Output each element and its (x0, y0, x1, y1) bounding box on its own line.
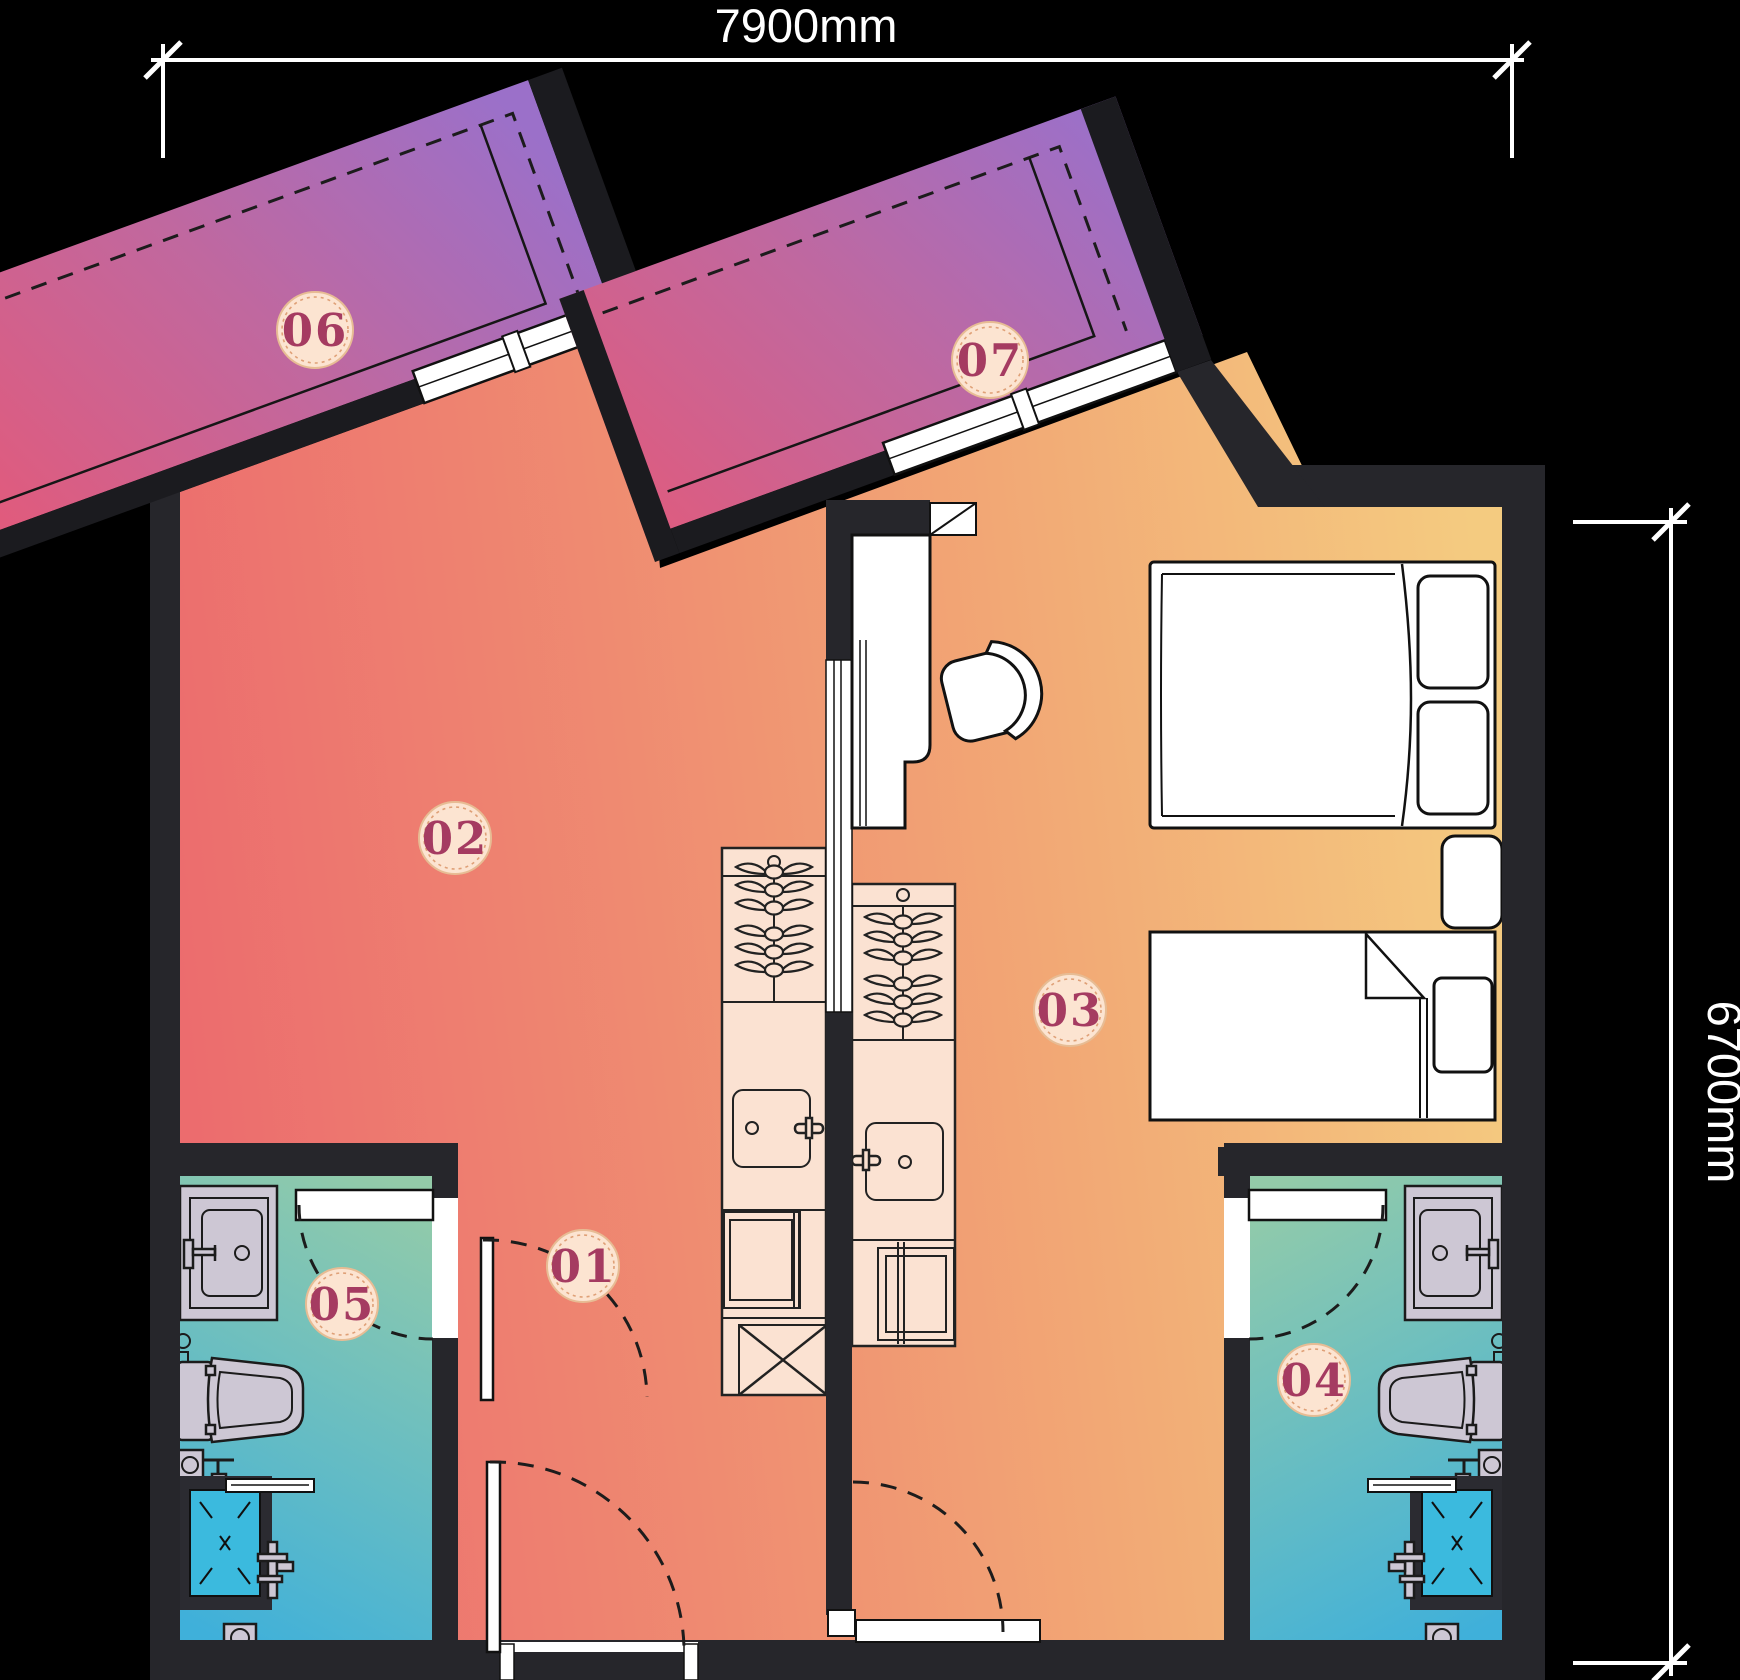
bathroom-04 (1224, 1143, 1532, 1680)
single-bed (1150, 932, 1495, 1120)
door-stop (684, 1644, 698, 1680)
dimension-top: 7900mm (145, 0, 1530, 158)
room-badge-06-label: 06 (282, 304, 349, 357)
height-dimension-label: 6700mm (1698, 1001, 1740, 1184)
width-dimension-label: 7900mm (715, 0, 898, 52)
room-badge-07: 07 (952, 322, 1028, 398)
pillow (1418, 702, 1488, 814)
floorplan-canvas: 01 02 03 04 05 06 07 (0, 0, 1740, 1680)
double-bed (1150, 562, 1495, 828)
room-badge-05-label: 05 (309, 1278, 376, 1331)
pillow (1434, 978, 1492, 1072)
nightstand (1442, 836, 1502, 928)
room-badge-04-label: 04 (1281, 1354, 1348, 1407)
right-wall (1502, 465, 1545, 1680)
room-badge-01-label: 01 (550, 1240, 617, 1293)
dimension-right: 6700mm (1573, 504, 1740, 1680)
sliding-panel (826, 660, 852, 1012)
entry-threshold (500, 1642, 698, 1652)
kitchen-counter-left (722, 848, 827, 1395)
room-badge-01: 01 (547, 1230, 619, 1302)
door-stop (500, 1644, 514, 1680)
entry-door-leaf (487, 1462, 500, 1652)
room-badge-04: 04 (1278, 1344, 1350, 1416)
wall-end-cap (828, 1610, 855, 1636)
inner-door-leaf (481, 1238, 493, 1400)
room-badge-02-label: 02 (422, 812, 489, 865)
sliding-door-threshold (856, 1620, 1040, 1642)
bottom-wall (150, 1640, 1545, 1680)
pillow (1418, 576, 1488, 688)
room-badge-07-label: 07 (957, 334, 1024, 387)
bathroom-05 (150, 1143, 458, 1680)
floorplan-drawing: 01 02 03 04 05 06 07 (0, 0, 1740, 1680)
left-wall (150, 478, 180, 1680)
room-badge-03-label: 03 (1037, 984, 1104, 1037)
room3-bottom-wall (1218, 1147, 1502, 1176)
room-badge-05: 05 (306, 1268, 378, 1340)
kitchen-counter-right (852, 884, 955, 1346)
room-badge-02: 02 (419, 802, 491, 874)
room-badge-03: 03 (1034, 974, 1106, 1046)
room-badge-06: 06 (277, 292, 353, 368)
